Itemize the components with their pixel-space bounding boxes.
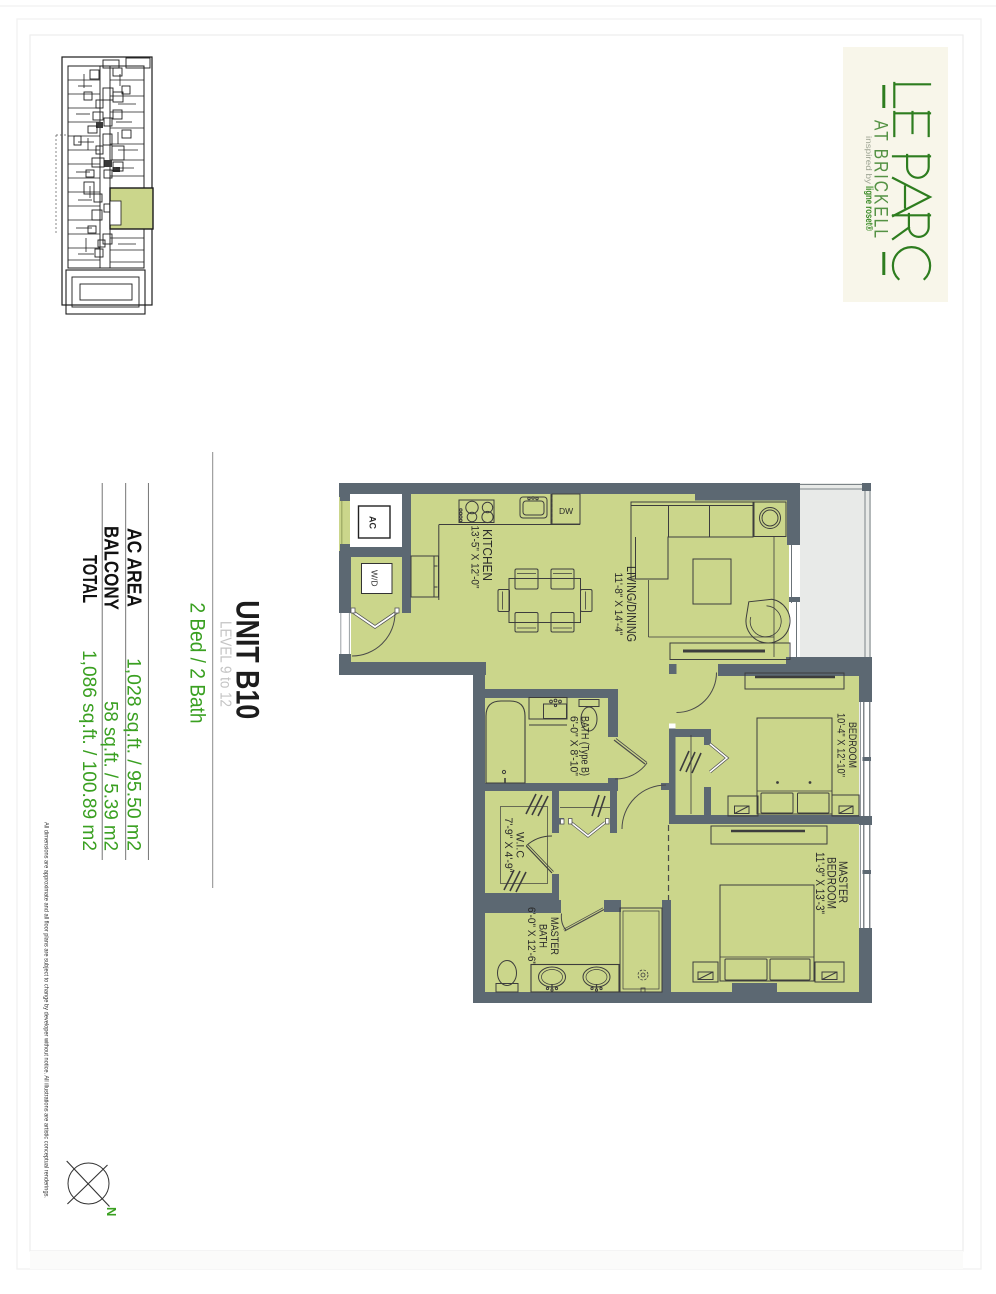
svg-text:7'-9" X 4'-9": 7'-9" X 4'-9" — [502, 818, 514, 873]
svg-text:1,086 sq.ft. / 100.89 m2: 1,086 sq.ft. / 100.89 m2 — [78, 650, 99, 851]
svg-text:BALCONY: BALCONY — [100, 526, 122, 611]
svg-text:1,028 sq.ft. / 95.50 m2: 1,028 sq.ft. / 95.50 m2 — [123, 658, 144, 851]
svg-text:58 sq.ft. / 5.39 m2: 58 sq.ft. / 5.39 m2 — [100, 701, 121, 851]
svg-text:13'-5" X 12'-0": 13'-5" X 12'-0" — [469, 526, 481, 589]
svg-text:11'-8" X 14'-4": 11'-8" X 14'-4" — [612, 573, 624, 636]
svg-text:AC AREA: AC AREA — [123, 528, 145, 607]
svg-text:BEDROOM: BEDROOM — [825, 857, 837, 909]
svg-text:W/D: W/D — [370, 570, 380, 587]
svg-text:KITCHEN: KITCHEN — [480, 529, 494, 581]
svg-text:AC: AC — [368, 516, 378, 529]
svg-text:6'-0" X 8'-10": 6'-0" X 8'-10" — [568, 716, 580, 776]
svg-text:10'-4" X 12'-10": 10'-4" X 12'-10" — [835, 713, 847, 777]
svg-text:W.I.C: W.I.C — [514, 832, 526, 858]
svg-text:DW: DW — [559, 506, 573, 516]
svg-text:BEDROOM: BEDROOM — [846, 722, 858, 768]
svg-text:ligne roset®: ligne roset® — [863, 186, 875, 231]
svg-text:TOTAL: TOTAL — [78, 555, 100, 603]
svg-text:LIVING/DINING: LIVING/DINING — [624, 566, 638, 642]
svg-text:All dimensions are approximate: All dimensions are approximate and all f… — [43, 822, 50, 1198]
svg-text:2 Bed / 2 Bath: 2 Bed / 2 Bath — [186, 603, 209, 724]
svg-text:11'-9" X 13'-3": 11'-9" X 13'-3" — [813, 852, 825, 914]
svg-text:N: N — [104, 1207, 119, 1216]
svg-text:UNIT B10: UNIT B10 — [230, 600, 266, 719]
svg-text:inspired by: inspired by — [864, 136, 874, 185]
svg-text:LEVEL 9 to 12: LEVEL 9 to 12 — [217, 621, 234, 707]
svg-text:6'-0" X 12'-6": 6'-0" X 12'-6" — [525, 907, 537, 965]
svg-text:MASTER: MASTER — [836, 861, 848, 903]
svg-text:MASTER: MASTER — [548, 917, 560, 955]
svg-text:BATH: BATH — [537, 924, 549, 948]
